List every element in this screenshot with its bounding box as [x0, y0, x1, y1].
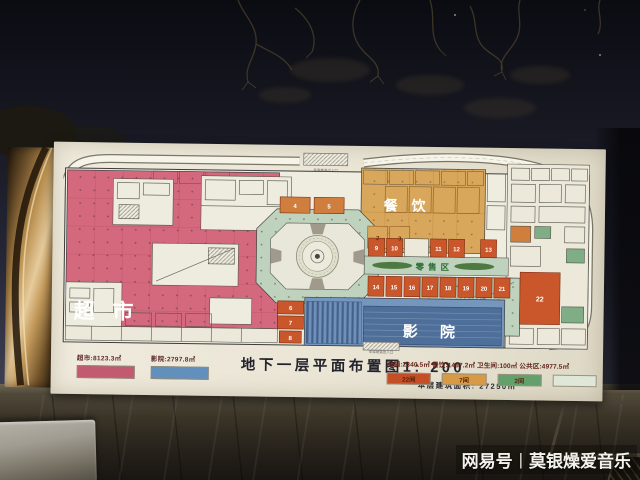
gold-swirl [5, 147, 58, 388]
floor-plan-svg: 4 5 2 3 9 10 11 12 13 14 15 16 17 18 19 … [61, 148, 597, 357]
legend-swatch-7: 7间 [442, 373, 486, 386]
night-street-scene: 4 5 2 3 9 10 11 12 13 14 15 16 17 18 19 … [0, 0, 640, 480]
unit-cell: 13 [485, 248, 492, 254]
unit-cell: 17 [427, 286, 434, 292]
legend-label: 超市:8123.3㎡ [77, 352, 135, 363]
legend-item-supermarket: 超市:8123.3㎡ [77, 352, 135, 379]
unit-cell: 15 [391, 285, 398, 291]
floor-plan-poster: 4 5 2 3 9 10 11 12 13 14 15 16 17 18 19 … [50, 142, 605, 402]
legend-swatch-22: 22间 [387, 372, 431, 385]
billboard: 4 5 2 3 9 10 11 12 13 14 15 16 17 18 19 … [2, 139, 608, 405]
unit-cell: 19 [463, 286, 470, 292]
unit-cell: 16 [409, 286, 416, 292]
dining-label: 餐 饮 [383, 197, 431, 214]
gold-side-panel [5, 147, 58, 388]
unit-22-label: 22 [536, 296, 544, 303]
unit-cell: 10 [391, 246, 398, 252]
legend-areas-line: 商铺:2340.5㎡ 餐饮:1487.2㎡ 卫生间:100㎡ 公共区:4977.… [387, 358, 597, 371]
watermark-account: 莫银燥爱音乐 [529, 447, 631, 472]
legend-right: 商铺:2340.5㎡ 餐饮:1487.2㎡ 卫生间:100㎡ 公共区:4977.… [387, 358, 597, 387]
unit-cell: 18 [445, 286, 452, 292]
watermark-separator: | [519, 450, 523, 470]
retail-label: 零售区 [414, 262, 453, 273]
unit-cell: 21 [499, 287, 506, 293]
unit-cell: 14 [373, 285, 380, 291]
legend-item-cinema: 影院:2797.8㎡ [151, 353, 209, 380]
legend-swatch-2: 2间 [497, 374, 541, 387]
cinema-label: 影 院 [403, 323, 464, 342]
legend: 超市:8123.3㎡ 影院:2797.8㎡ 地下一层平面布置图1: 200 本层… [50, 348, 603, 400]
unit-cell: 12 [453, 247, 460, 253]
legend-swatch-cinema [151, 366, 209, 380]
legend-swatch-supermarket [77, 365, 135, 379]
unit-cell: 11 [435, 247, 442, 253]
tree-branches [0, 0, 640, 155]
unit-cell: 20 [481, 287, 488, 293]
ramp-label-top: 车库坡道出入口 [313, 167, 338, 172]
concrete-block [0, 420, 97, 480]
legend-swatch-blank [552, 375, 596, 388]
supermarket-label: 超 市 [74, 299, 140, 324]
watermark-brand: 网易号 [462, 447, 513, 472]
legend-left: 超市:8123.3㎡ 影院:2797.8㎡ [77, 352, 209, 380]
central-atrium [256, 209, 379, 305]
legend-label: 影院:2797.8㎡ [151, 353, 209, 364]
watermark: 网易号 | 莫银燥爱音乐 [456, 445, 637, 474]
